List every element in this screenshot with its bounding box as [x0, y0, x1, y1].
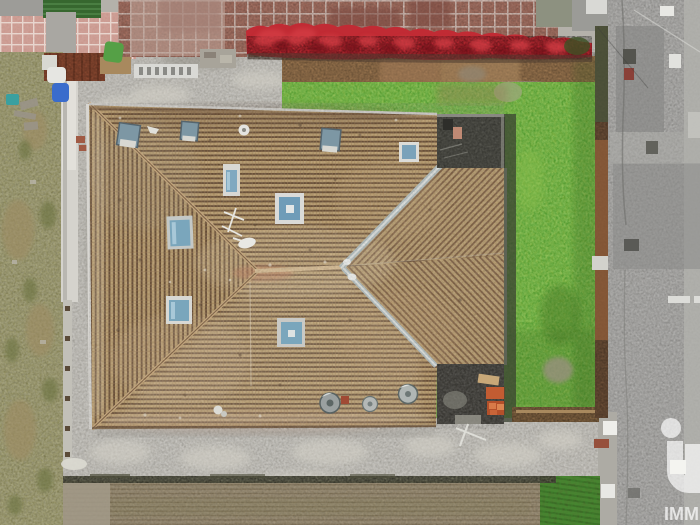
svg-text:IMM: IMM	[664, 504, 699, 524]
